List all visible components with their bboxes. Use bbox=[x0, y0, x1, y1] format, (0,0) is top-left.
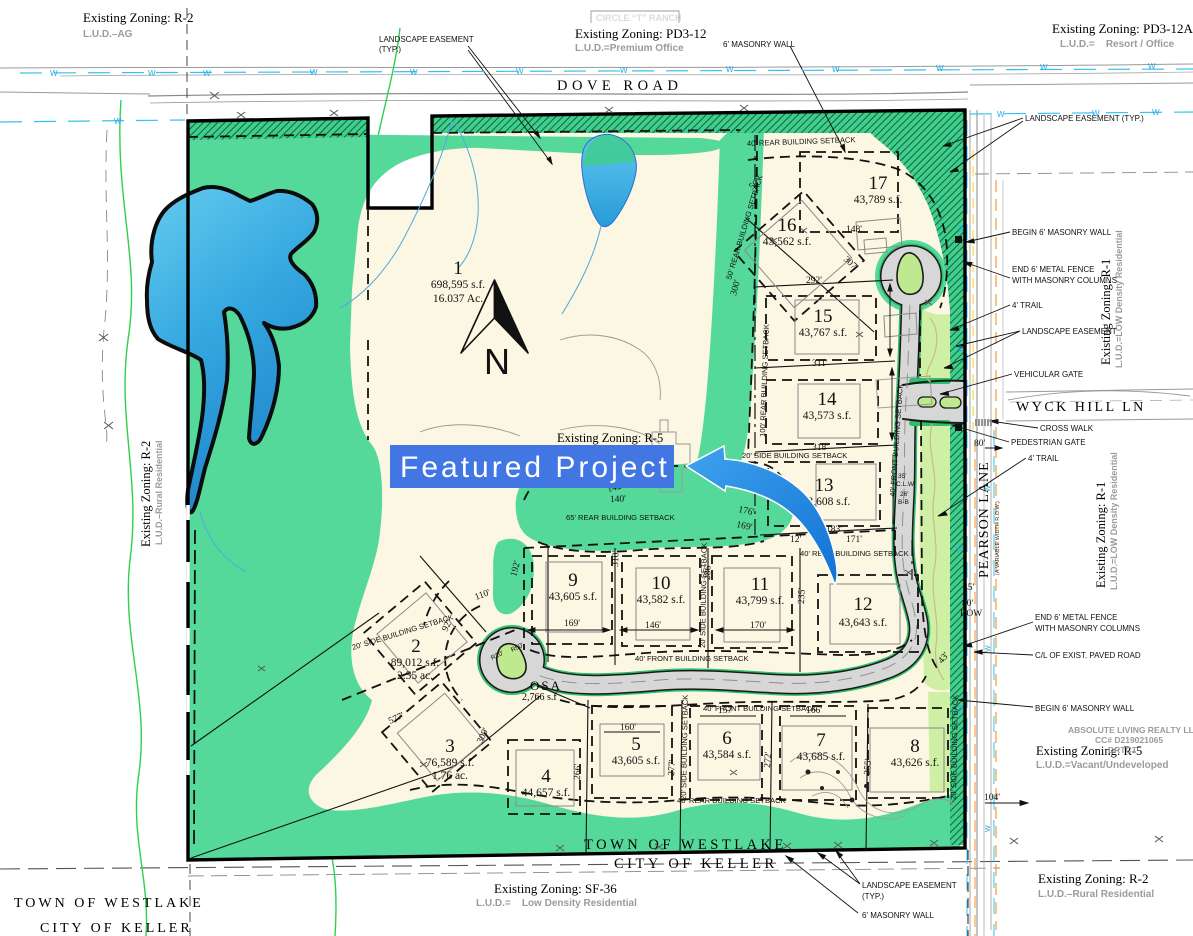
svg-text:LANDSCAPE EASEMENT: LANDSCAPE EASEMENT bbox=[1022, 327, 1117, 336]
svg-text:43,626 s.f.: 43,626 s.f. bbox=[891, 757, 940, 769]
svg-text:5: 5 bbox=[631, 734, 641, 755]
svg-text:PEDESTRIAN GATE: PEDESTRIAN GATE bbox=[1011, 438, 1086, 447]
svg-text:140': 140' bbox=[610, 494, 627, 505]
svg-text:OSA: OSA bbox=[530, 678, 562, 693]
svg-text:TOWN OF WESTLAKE: TOWN OF WESTLAKE bbox=[14, 896, 204, 911]
svg-text:END 6' METAL FENCE: END 6' METAL FENCE bbox=[1012, 265, 1094, 274]
svg-text:DRTCT: DRTCT bbox=[1108, 745, 1138, 755]
svg-text:40' FRONT BUILDING SETBACK: 40' FRONT BUILDING SETBACK bbox=[635, 654, 749, 663]
svg-text:DOVE ROAD: DOVE ROAD bbox=[557, 78, 682, 94]
svg-text:(TYP.): (TYP.) bbox=[379, 45, 401, 54]
svg-text:Existing Zoning: R-5: Existing Zoning: R-5 bbox=[557, 431, 663, 445]
svg-text:43,799 s.f.: 43,799 s.f. bbox=[736, 595, 785, 607]
svg-text:2.35 ac.: 2.35 ac. bbox=[397, 670, 433, 682]
svg-text:43,767 s.f.: 43,767 s.f. bbox=[799, 327, 848, 339]
svg-text:272': 272' bbox=[763, 751, 774, 768]
svg-text:6' MASONRY WALL: 6' MASONRY WALL bbox=[723, 40, 796, 49]
svg-text:43,605 s.f.: 43,605 s.f. bbox=[549, 591, 598, 603]
svg-text:Existing Zoning: R-2: Existing Zoning: R-2 bbox=[139, 441, 153, 547]
svg-text:43,685 s.f.: 43,685 s.f. bbox=[797, 751, 846, 763]
svg-text:9: 9 bbox=[568, 570, 578, 591]
svg-text:698,595 s.f.: 698,595 s.f. bbox=[431, 279, 485, 291]
svg-text:W: W bbox=[936, 64, 944, 73]
svg-text:L.U.D.–AG: L.U.D.–AG bbox=[83, 29, 133, 40]
svg-text:170': 170' bbox=[750, 621, 766, 631]
svg-text:W: W bbox=[310, 68, 318, 77]
svg-text:Existing Zoning: R-2: Existing Zoning: R-2 bbox=[83, 10, 194, 25]
svg-text:CC# D219021065: CC# D219021065 bbox=[1095, 735, 1163, 745]
svg-text:LANDSCAPE EASEMENT (TYP.): LANDSCAPE EASEMENT (TYP.) bbox=[1025, 114, 1144, 123]
svg-text:W: W bbox=[958, 545, 965, 552]
svg-text:W: W bbox=[1040, 63, 1048, 72]
svg-text:W: W bbox=[832, 65, 840, 74]
svg-text:16.037 Ac.: 16.037 Ac. bbox=[433, 293, 483, 305]
svg-text:L.U.D.=Premium Office: L.U.D.=Premium Office bbox=[575, 43, 684, 54]
svg-text:LANDSCAPE EASEMENT: LANDSCAPE EASEMENT bbox=[862, 881, 957, 890]
svg-text:L.U.D.= Resort / Office: L.U.D.= Resort / Office bbox=[1060, 39, 1175, 50]
svg-text:43,643 s.f.: 43,643 s.f. bbox=[839, 617, 888, 629]
svg-text:(TYP.): (TYP.) bbox=[862, 892, 884, 901]
svg-text:W: W bbox=[958, 705, 965, 712]
svg-text:W: W bbox=[997, 110, 1005, 119]
svg-text:13: 13 bbox=[815, 475, 834, 496]
svg-text:Existing Zoning: R-1: Existing Zoning: R-1 bbox=[1099, 259, 1113, 365]
svg-text:171': 171' bbox=[846, 535, 862, 545]
svg-text:W: W bbox=[958, 345, 965, 352]
svg-text:W: W bbox=[620, 66, 628, 75]
svg-text:310': 310' bbox=[611, 551, 622, 568]
svg-text:35': 35' bbox=[898, 473, 906, 480]
svg-text:160': 160' bbox=[620, 723, 636, 733]
svg-text:266': 266' bbox=[573, 764, 584, 781]
svg-text:15: 15 bbox=[814, 306, 833, 327]
svg-text:L.U.D.=Vacant/Undeveloped: L.U.D.=Vacant/Undeveloped bbox=[1036, 760, 1169, 771]
svg-text:43,573 s.f.: 43,573 s.f. bbox=[803, 410, 852, 422]
svg-text:WITH MASONRY COLUMNS: WITH MASONRY COLUMNS bbox=[1012, 276, 1117, 285]
svg-text:ROW: ROW bbox=[960, 609, 982, 619]
svg-text:8: 8 bbox=[910, 736, 920, 757]
svg-text:CITY OF KELLER: CITY OF KELLER bbox=[614, 856, 778, 872]
svg-text:6' MASONRY WALL: 6' MASONRY WALL bbox=[862, 911, 935, 920]
svg-text:26': 26' bbox=[900, 491, 908, 498]
svg-text:BEGIN 6' MASONRY WALL: BEGIN 6' MASONRY WALL bbox=[1012, 228, 1112, 237]
svg-text:WYCK HILL LN: WYCK HILL LN bbox=[1016, 400, 1146, 415]
svg-text:20' SIDE BUILDING SETBACK: 20' SIDE BUILDING SETBACK bbox=[698, 543, 709, 648]
svg-text:44,657 s.f.: 44,657 s.f. bbox=[522, 787, 571, 799]
svg-text:10: 10 bbox=[652, 573, 671, 594]
svg-text:1: 1 bbox=[453, 258, 463, 279]
svg-text:146': 146' bbox=[645, 621, 661, 631]
svg-text:45': 45' bbox=[963, 583, 975, 593]
svg-text:W: W bbox=[1092, 109, 1100, 118]
svg-text:WITH MASONRY COLUMNS: WITH MASONRY COLUMNS bbox=[1035, 624, 1140, 633]
svg-text:89,012 s.f.: 89,012 s.f. bbox=[391, 657, 440, 669]
svg-text:PEARSON LANE: PEARSON LANE bbox=[977, 461, 992, 578]
svg-text:2,766 s.f: 2,766 s.f bbox=[522, 692, 557, 703]
svg-text:318': 318' bbox=[812, 443, 828, 453]
svg-text:12: 12 bbox=[854, 594, 873, 615]
svg-text:L.U.D.= Low Density Residen: L.U.D.= Low Density Residential bbox=[476, 898, 637, 909]
svg-text:16: 16 bbox=[778, 215, 797, 236]
svg-text:43,789 s.f.: 43,789 s.f. bbox=[854, 194, 903, 206]
svg-text:W: W bbox=[985, 825, 992, 832]
svg-text:7: 7 bbox=[816, 730, 826, 751]
svg-text:148': 148' bbox=[846, 225, 862, 235]
svg-text:Featured Project: Featured Project bbox=[400, 451, 670, 484]
svg-text:W: W bbox=[958, 225, 965, 232]
svg-text:277': 277' bbox=[667, 759, 678, 776]
svg-text:BEGIN 6' MASONRY WALL: BEGIN 6' MASONRY WALL bbox=[1035, 704, 1135, 713]
svg-text:157': 157' bbox=[718, 706, 734, 716]
svg-text:Existing Zoning: R-1: Existing Zoning: R-1 bbox=[1094, 482, 1108, 588]
svg-text:43,605 s.f.: 43,605 s.f. bbox=[612, 755, 661, 767]
svg-text:286': 286' bbox=[703, 564, 714, 581]
svg-text:4' TRAIL: 4' TRAIL bbox=[1012, 301, 1043, 310]
svg-text:80': 80' bbox=[962, 599, 974, 609]
svg-text:4: 4 bbox=[541, 766, 551, 787]
svg-text:B-B: B-B bbox=[898, 499, 909, 506]
svg-text:Existing Zoning: PD3-12: Existing Zoning: PD3-12 bbox=[575, 26, 706, 41]
svg-text:(A VARIABLE WIDTH R.O.W.): (A VARIABLE WIDTH R.O.W.) bbox=[995, 501, 1001, 575]
svg-text:W: W bbox=[516, 67, 524, 76]
svg-text:40' REAR BUILDING SETBACK: 40' REAR BUILDING SETBACK bbox=[677, 796, 786, 805]
svg-text:L.U.D.=LOW Density Residential: L.U.D.=LOW Density Residential bbox=[1109, 452, 1119, 590]
svg-text:11: 11 bbox=[751, 574, 769, 595]
svg-text:Existing Zoning: R-2: Existing Zoning: R-2 bbox=[1038, 871, 1149, 886]
svg-text:4' TRAIL: 4' TRAIL bbox=[1028, 454, 1059, 463]
svg-text:20' SIDE BUILDING SETBACK: 20' SIDE BUILDING SETBACK bbox=[742, 451, 847, 460]
svg-text:W: W bbox=[114, 117, 122, 126]
svg-text:Existing Zoning: PD3-12A: Existing Zoning: PD3-12A bbox=[1052, 21, 1193, 36]
svg-text:L.U.D.–Rural Residential: L.U.D.–Rural Residential bbox=[1038, 889, 1154, 900]
svg-text:ABSOLUTE LIVING REALTY LLC: ABSOLUTE LIVING REALTY LLC bbox=[1068, 725, 1193, 735]
svg-text:W: W bbox=[1148, 62, 1156, 71]
svg-text:6: 6 bbox=[722, 728, 732, 749]
svg-text:311': 311' bbox=[812, 359, 828, 369]
svg-text:W: W bbox=[726, 65, 734, 74]
svg-text:40' REAR BUILDING SETBACK: 40' REAR BUILDING SETBACK bbox=[800, 549, 909, 558]
svg-text:14: 14 bbox=[818, 389, 838, 410]
svg-text:1.76 ac.: 1.76 ac. bbox=[432, 770, 468, 782]
svg-text:17: 17 bbox=[869, 173, 888, 194]
svg-text:43,584 s.f.: 43,584 s.f. bbox=[703, 749, 752, 761]
svg-text:Existing Zoning: SF-36: Existing Zoning: SF-36 bbox=[494, 881, 617, 896]
svg-text:2: 2 bbox=[411, 636, 421, 657]
svg-text:LANDSCAPE EASEMENT: LANDSCAPE EASEMENT bbox=[379, 35, 474, 44]
svg-text:TOWN OF WESTLAKE: TOWN OF WESTLAKE bbox=[584, 837, 787, 853]
svg-text:43,562 s.f.: 43,562 s.f. bbox=[763, 236, 812, 248]
svg-text:W: W bbox=[50, 69, 58, 78]
svg-text:104': 104' bbox=[984, 793, 1000, 803]
svg-text:W: W bbox=[1152, 108, 1160, 117]
svg-text:166': 166' bbox=[806, 706, 822, 716]
svg-text:169': 169' bbox=[564, 619, 580, 629]
svg-text:65' REAR BUILDING SETBACK: 65' REAR BUILDING SETBACK bbox=[566, 513, 675, 522]
svg-text:235': 235' bbox=[797, 588, 808, 605]
svg-text:80': 80' bbox=[974, 439, 986, 449]
svg-text:CROSS WALK: CROSS WALK bbox=[1040, 424, 1094, 433]
svg-text:C/L OF EXIST. PAVED ROAD: C/L OF EXIST. PAVED ROAD bbox=[1035, 651, 1141, 660]
svg-text:CIRCLE “T” RANCH: CIRCLE “T” RANCH bbox=[596, 13, 682, 23]
svg-text:L.U.D.=LOW Density Residential: L.U.D.=LOW Density Residential bbox=[1114, 230, 1124, 368]
svg-text:12': 12' bbox=[790, 535, 802, 545]
svg-text:3: 3 bbox=[445, 736, 455, 757]
svg-text:255': 255' bbox=[863, 758, 874, 775]
svg-text:W: W bbox=[985, 485, 992, 492]
svg-text:N: N bbox=[484, 341, 510, 382]
svg-text:20' SIDE BUILDING SETBACK: 20' SIDE BUILDING SETBACK bbox=[679, 695, 690, 800]
svg-text:43,582 s.f.: 43,582 s.f. bbox=[637, 594, 686, 606]
svg-text:END 6' METAL FENCE: END 6' METAL FENCE bbox=[1035, 613, 1117, 622]
svg-text:W: W bbox=[203, 69, 211, 78]
svg-text:C.L.W: C.L.W bbox=[896, 481, 915, 488]
svg-text:W: W bbox=[985, 645, 992, 652]
svg-text:CITY OF KELLER: CITY OF KELLER bbox=[40, 921, 193, 936]
svg-text:L.U.D.–Rural Residential: L.U.D.–Rural Residential bbox=[154, 440, 164, 545]
svg-text:W: W bbox=[410, 68, 418, 77]
svg-text:76,589 s.f.: 76,589 s.f. bbox=[426, 757, 475, 769]
svg-text:W: W bbox=[148, 69, 156, 78]
svg-text:VEHICULAR GATE: VEHICULAR GATE bbox=[1014, 370, 1083, 379]
svg-text:292': 292' bbox=[806, 276, 822, 286]
